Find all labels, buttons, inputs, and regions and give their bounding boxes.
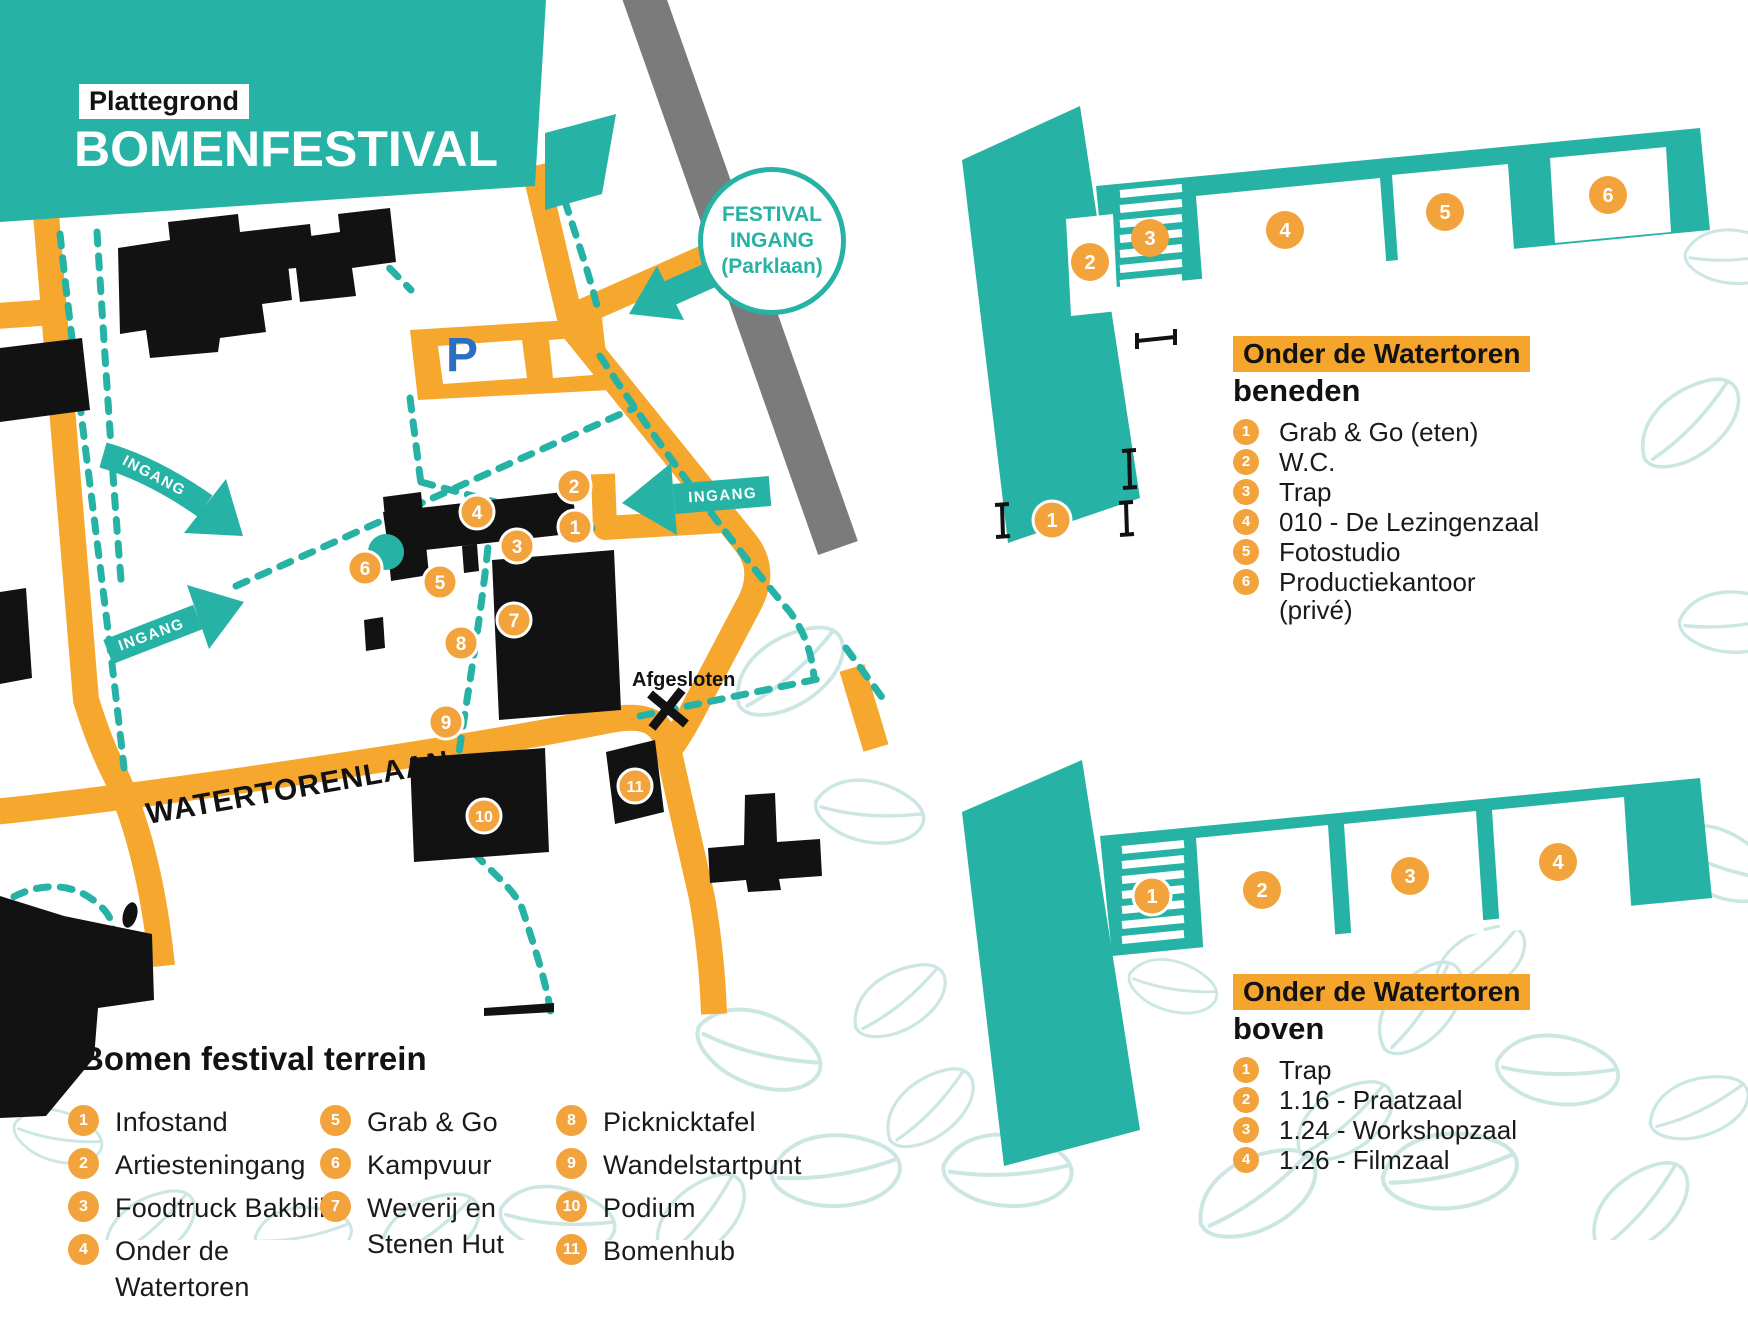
legend-item: 2Artiesteningang [68,1147,333,1183]
map-marker-kampvuur: 6 [348,551,382,585]
watertoren-tower [962,106,1140,543]
marker-number: 2 [1256,880,1267,902]
legend-item: 5Grab & Go [320,1104,504,1140]
legend-item-label: Kampvuur [367,1147,492,1183]
parking-label: P [446,329,478,382]
plan-marker: 1 [1133,877,1171,915]
map-marker-watertoren: 4 [460,495,494,529]
legend-item-number: 1 [1233,1057,1259,1083]
marker-number: 4 [472,503,483,524]
boven-legend-title: Onder de Watertoren [1233,974,1530,1010]
map-marker-grabgo: 5 [423,565,457,599]
marker-number: 6 [1602,185,1613,207]
plan-marker: 2 [1071,243,1109,281]
buildings [0,208,822,1118]
map-marker-bomenhub: 11 [618,769,652,803]
legend-item-number: 6 [1233,569,1259,595]
legend-item-label: Wandelstartpunt [603,1147,802,1183]
legend-item: 10Podium [556,1190,802,1226]
building-sliver [484,1003,554,1016]
legend-item-label: Grab & Go (eten) [1279,418,1478,446]
watertoren-tower [962,760,1140,1166]
marker-number: 2 [1084,252,1095,274]
legend-item-label: 1.16 - Praatzaal [1279,1086,1463,1114]
building-cluster [708,793,822,892]
footpath [97,232,121,580]
legend-item: 1Infostand [68,1104,333,1140]
legend-item-number: 3 [1233,1117,1259,1143]
legend-item-number: 6 [320,1148,351,1179]
page-title: BOMENFESTIVAL [74,124,498,174]
marker-number: 1 [570,518,581,539]
legend-item-number: 3 [1233,479,1259,505]
legend-item-number: 9 [556,1148,587,1179]
closed-label: Afgesloten [632,669,735,691]
building [0,338,90,422]
legend-item-number: 2 [1233,449,1259,475]
teal-wedge [545,114,616,210]
legend-item: 5Fotostudio [1233,538,1713,566]
legend-item-label: Trap [1279,478,1332,506]
map-marker-foodtruck: 3 [500,529,534,563]
legend-item: 9Wandelstartpunt [556,1147,802,1183]
legend-item-number: 4 [68,1234,99,1265]
marker-number: 7 [509,611,520,632]
legend-item-number: 7 [320,1191,351,1222]
marker-number: 10 [475,809,493,826]
legend-item: 31.24 - Workshopzaal [1233,1116,1713,1144]
marker-number: 2 [569,477,580,498]
legend-item: 11Bomenhub [556,1233,802,1269]
beneden-legend-title: Onder de Watertoren [1233,336,1530,372]
legend-item-label: 010 - De Lezingenzaal [1279,508,1539,536]
legend-item: 6Productiekantoor (privé) [1233,568,1713,624]
legend-item-number: 3 [68,1191,99,1222]
legend-item-label: Fotostudio [1279,538,1400,566]
footpath [410,398,421,484]
map-marker-podium: 10 [467,799,501,833]
terrain-legend: Bomen festival terrein 1Infostand 2Artie… [68,1040,728,1334]
building-cluster [118,214,314,358]
marker-number: 5 [1439,202,1450,224]
legend-item: 1Grab & Go (eten) [1233,418,1713,446]
legend-item: 3Trap [1233,478,1713,506]
building [364,617,385,651]
legend-item: 4010 - De Lezingenzaal [1233,508,1713,536]
plan-marker: 4 [1539,843,1577,881]
legend-item-label: 1.26 - Filmzaal [1279,1146,1450,1174]
map-marker-picknicktafel: 8 [444,626,478,660]
marker-number: 5 [435,573,446,594]
legend-item-number: 5 [320,1105,351,1136]
plan-marker: 5 [1426,193,1464,231]
legend-item: 6Kampvuur [320,1147,504,1183]
terrain-legend-col2: 5Grab & Go 6Kampvuur 7Weverij en Stenen … [320,1104,504,1262]
marker-number: 11 [627,779,644,796]
boven-legend-subtitle: boven [1233,1013,1713,1046]
legend-item: 2W.C. [1233,448,1713,476]
marker-number: 4 [1552,852,1564,874]
plan-marker: 1 [1033,501,1071,539]
legend-item: 21.16 - Praatzaal [1233,1086,1713,1114]
terrain-legend-col1: 1Infostand 2Artiesteningang 3Foodtruck B… [68,1104,333,1305]
map-dot [120,901,140,930]
marker-number: 8 [456,634,467,655]
leaf-icon [843,957,956,1045]
plan-marker: 2 [1243,871,1281,909]
header-badge: Plattegrond [79,84,249,119]
legend-item-label: Onder de Watertoren [115,1233,250,1305]
legend-item-number: 11 [556,1234,587,1265]
marker-number: 9 [441,713,452,734]
marker-number: 6 [360,559,371,580]
marker-number: 1 [1146,886,1157,908]
marker-number: 3 [1404,866,1415,888]
legend-item: 7Weverij en Stenen Hut [320,1190,504,1262]
beneden-legend: Onder de Watertoren beneden 1Grab & Go (… [1233,336,1713,624]
legend-item-label: Foodtruck Bakblik [115,1190,333,1226]
legend-item-label: Infostand [115,1104,228,1140]
road-branch-west [0,312,54,316]
marker-number: 1 [1046,510,1057,532]
plan-marker: 3 [1391,857,1429,895]
boven-legend-items: 1Trap 21.16 - Praatzaal 31.24 - Workshop… [1233,1056,1713,1174]
leaf-icon [808,761,931,863]
beneden-legend-items: 1Grab & Go (eten) 2W.C. 3Trap 4010 - De … [1233,418,1713,624]
map-marker-wandelstartpunt: 9 [429,705,463,739]
legend-item-number: 1 [1233,419,1259,445]
building [0,588,32,684]
legend-item: 8Picknicktafel [556,1104,802,1140]
legend-item: 3Foodtruck Bakblik [68,1190,333,1226]
terrain-legend-title: Bomen festival terrein [80,1040,728,1078]
legend-item-label: Picknicktafel [603,1104,756,1140]
building [462,544,479,573]
boven-legend: Onder de Watertoren boven 1Trap 21.16 - … [1233,974,1713,1174]
legend-item-label: Grab & Go [367,1104,498,1140]
marker-number: 3 [512,537,523,558]
legend-item-number: 1 [68,1105,99,1136]
legend-item-label: 1.24 - Workshopzaal [1279,1116,1517,1144]
legend-item: 41.26 - Filmzaal [1233,1146,1713,1174]
legend-item-label: Trap [1279,1056,1332,1084]
road-fragment [852,668,876,748]
legend-item-number: 8 [556,1105,587,1136]
plan-marker: 3 [1131,219,1169,257]
festival-entrance-line2: INGANG [730,228,814,254]
legend-item-number: 2 [68,1148,99,1179]
legend-item: 1Trap [1233,1056,1713,1084]
marker-number: 4 [1279,220,1291,242]
legend-item-label: Bomenhub [603,1233,735,1269]
beneden-legend-subtitle: beneden [1233,375,1713,408]
map-marker-infostand: 1 [558,510,592,544]
legend-item-number: 10 [556,1191,587,1222]
festival-entrance-line1: FESTIVAL [722,202,822,228]
legend-item-label: Productiekantoor (privé) [1279,568,1476,624]
legend-item: 4Onder de Watertoren [68,1233,333,1305]
legend-item-label: Weverij en Stenen Hut [367,1190,504,1262]
legend-item-number: 4 [1233,1147,1259,1173]
legend-item-label: Podium [603,1190,696,1226]
legend-item-number: 4 [1233,509,1259,535]
festival-entrance-line3: (Parklaan) [721,254,823,280]
festival-entrance-callout: FESTIVAL INGANG (Parklaan) [698,167,846,315]
plan-marker: 6 [1589,176,1627,214]
legend-item-label: Artiesteningang [115,1147,306,1183]
legend-item-number: 5 [1233,539,1259,565]
legend-item-number: 2 [1233,1087,1259,1113]
terrain-legend-col3: 8Picknicktafel 9Wandelstartpunt 10Podium… [556,1104,802,1269]
plan-marker: 4 [1266,211,1304,249]
map-marker-artiesteningang: 2 [557,469,591,503]
legend-item-label: W.C. [1279,448,1335,476]
marker-number: 3 [1144,228,1155,250]
map-marker-weverij: 7 [497,603,531,637]
